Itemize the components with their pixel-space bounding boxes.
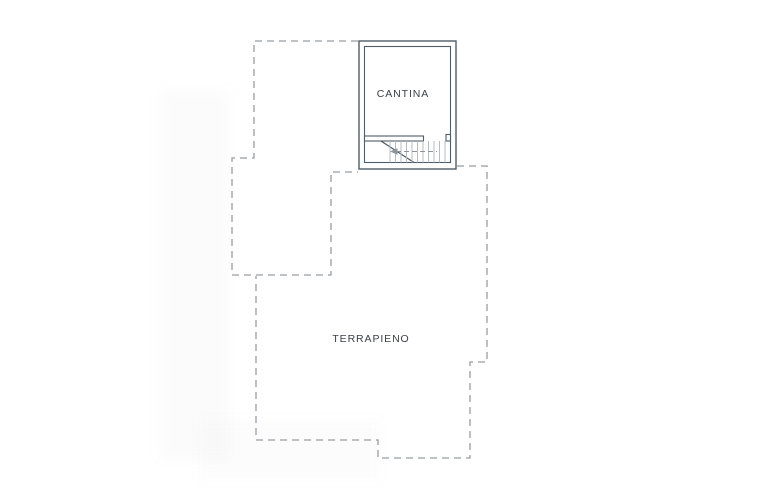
cantina-outer-wall (359, 41, 456, 169)
cantina-room (359, 41, 456, 169)
floor-plan-drawing: CANTINA TERRAPIENO (0, 0, 764, 492)
dashed-boundary-upper (232, 41, 358, 275)
door-jamb-stub (446, 135, 451, 142)
dashed-outline-terrapieno-path (256, 166, 487, 458)
dashed-boundary-terrapieno (256, 166, 487, 458)
dashed-outline-upper-path (232, 41, 358, 275)
stair-landing-wall (365, 136, 424, 141)
floor-plan-page: CANTINA TERRAPIENO (0, 0, 764, 492)
cantina-inner-wall (365, 47, 451, 163)
cantina-label: CANTINA (377, 88, 429, 100)
stair-direction-arrow-icon (390, 148, 437, 154)
terrapieno-label: TERRAPIENO (332, 333, 409, 345)
